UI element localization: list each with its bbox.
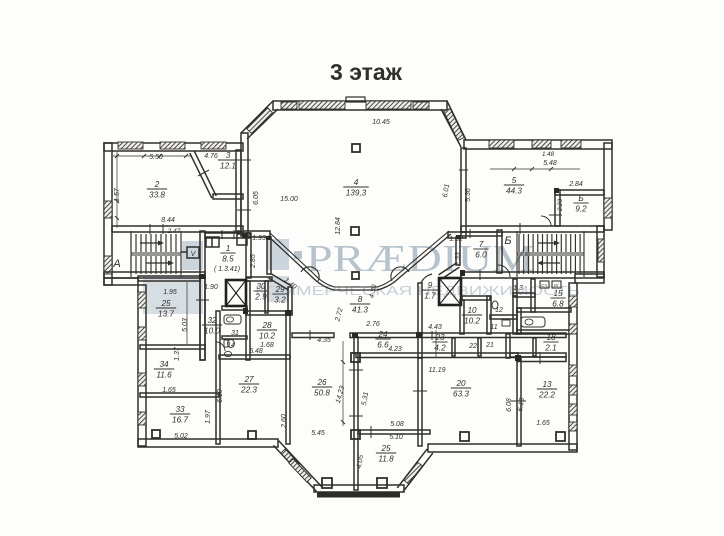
svg-text:26: 26 xyxy=(316,378,327,387)
svg-text:27: 27 xyxy=(243,375,254,384)
svg-text:34: 34 xyxy=(159,360,169,369)
svg-text:10.0: 10.0 xyxy=(204,327,220,336)
svg-text:7: 7 xyxy=(479,240,484,249)
svg-text:2.60: 2.60 xyxy=(281,414,288,429)
svg-text:2.1: 2.1 xyxy=(544,344,556,353)
svg-text:12: 12 xyxy=(495,307,503,314)
svg-text:15: 15 xyxy=(553,289,563,298)
svg-text:3.2: 3.2 xyxy=(274,296,286,305)
svg-text:13.7: 13.7 xyxy=(158,310,174,319)
svg-text:12.84: 12.84 xyxy=(335,217,342,235)
svg-text:8.44: 8.44 xyxy=(161,217,175,224)
svg-text:1.57: 1.57 xyxy=(114,187,121,202)
svg-text:2.33: 2.33 xyxy=(455,252,462,267)
svg-text:5.08: 5.08 xyxy=(390,421,404,428)
svg-text:А: А xyxy=(112,258,120,270)
svg-text:6.05: 6.05 xyxy=(253,191,260,205)
svg-text:2.23: 2.23 xyxy=(557,198,564,212)
svg-text:6.8: 6.8 xyxy=(552,300,564,309)
svg-text:22.2: 22.2 xyxy=(538,391,555,400)
svg-text:139,3: 139,3 xyxy=(346,189,367,198)
svg-text:24: 24 xyxy=(377,330,388,339)
svg-text:2.9: 2.9 xyxy=(254,293,267,302)
svg-text:50.8: 50.8 xyxy=(314,389,330,398)
svg-text:25: 25 xyxy=(160,299,171,308)
svg-text:10.45: 10.45 xyxy=(372,119,390,126)
svg-text:33: 33 xyxy=(175,405,185,414)
svg-text:2.84: 2.84 xyxy=(568,181,583,188)
svg-text:2.85: 2.85 xyxy=(250,254,257,269)
svg-text:Б: Б xyxy=(578,194,584,203)
svg-text:10.2: 10.2 xyxy=(464,317,480,326)
svg-text:1.65: 1.65 xyxy=(162,387,176,394)
svg-text:1.7: 1.7 xyxy=(424,292,436,301)
svg-text:8: 8 xyxy=(358,295,363,304)
svg-text:30: 30 xyxy=(256,282,266,291)
svg-text:21: 21 xyxy=(485,342,494,349)
svg-text:1.97: 1.97 xyxy=(205,409,212,424)
svg-text:16.7: 16.7 xyxy=(172,416,188,425)
svg-text:14: 14 xyxy=(227,342,235,349)
svg-text:11.6: 11.6 xyxy=(156,371,172,380)
svg-text:2.47: 2.47 xyxy=(167,228,181,235)
svg-text:33.8: 33.8 xyxy=(149,191,165,200)
svg-text:28: 28 xyxy=(261,321,272,330)
svg-text:41.3: 41.3 xyxy=(352,306,368,315)
svg-text:1.65: 1.65 xyxy=(536,420,550,427)
svg-text:8.5: 8.5 xyxy=(222,255,234,264)
svg-text:4.2: 4.2 xyxy=(434,344,446,353)
svg-text:11.8: 11.8 xyxy=(378,455,394,464)
svg-text:6.10: 6.10 xyxy=(217,389,224,403)
svg-text:11.19: 11.19 xyxy=(429,367,446,374)
svg-text:5.36: 5.36 xyxy=(465,188,472,202)
svg-text:4.76: 4.76 xyxy=(204,153,218,160)
svg-text:15.00: 15.00 xyxy=(280,196,298,203)
svg-text:12.1: 12.1 xyxy=(220,162,236,171)
svg-text:4.35: 4.35 xyxy=(317,337,331,344)
svg-text:20: 20 xyxy=(455,379,466,388)
svg-text:( 1.3.41): ( 1.3.41) xyxy=(214,266,240,273)
svg-text:1.32: 1.32 xyxy=(449,236,463,243)
svg-text:29: 29 xyxy=(274,285,285,294)
svg-text:1: 1 xyxy=(226,244,231,253)
svg-text:5.48: 5.48 xyxy=(249,348,263,355)
svg-text:6.08: 6.08 xyxy=(506,398,513,412)
svg-text:Б: Б xyxy=(504,235,511,247)
svg-text:10: 10 xyxy=(467,306,477,315)
svg-text:1.48: 1.48 xyxy=(542,151,555,158)
svg-text:4.43: 4.43 xyxy=(428,324,442,331)
svg-text:3: 3 xyxy=(226,151,231,160)
svg-text:31: 31 xyxy=(231,330,239,337)
svg-text:1.90: 1.90 xyxy=(204,284,218,291)
svg-text:44.3: 44.3 xyxy=(506,187,522,196)
svg-text:18: 18 xyxy=(546,333,556,342)
svg-text:1.93: 1.93 xyxy=(252,235,266,242)
svg-text:25: 25 xyxy=(380,444,391,453)
svg-text:63.3: 63.3 xyxy=(453,390,469,399)
svg-text:9.2: 9.2 xyxy=(575,205,587,214)
svg-text:5.10: 5.10 xyxy=(389,434,403,441)
svg-text:2.76: 2.76 xyxy=(365,321,380,328)
svg-text:23: 23 xyxy=(434,333,445,342)
svg-text:5.03: 5.03 xyxy=(182,318,189,332)
svg-text:9: 9 xyxy=(428,281,433,290)
svg-text:11: 11 xyxy=(490,324,497,331)
svg-text:22.3: 22.3 xyxy=(240,386,257,395)
svg-text:Сл: Сл xyxy=(541,283,547,288)
svg-text:5.02: 5.02 xyxy=(174,433,188,440)
svg-text:1.95: 1.95 xyxy=(163,289,177,296)
svg-text:1.3: 1.3 xyxy=(513,285,523,292)
svg-text:13: 13 xyxy=(542,380,552,389)
svg-text:1.37: 1.37 xyxy=(174,346,181,361)
svg-text:22: 22 xyxy=(468,343,477,350)
svg-text:5.50: 5.50 xyxy=(149,154,163,161)
svg-text:6.0: 6.0 xyxy=(475,251,487,260)
svg-text:5.48: 5.48 xyxy=(543,160,557,167)
svg-text:2: 2 xyxy=(154,180,160,189)
svg-text:5.45: 5.45 xyxy=(311,430,325,437)
svg-text:4: 4 xyxy=(354,178,359,187)
svg-text:3 этаж: 3 этаж xyxy=(330,59,403,85)
svg-text:4.23: 4.23 xyxy=(388,346,402,353)
svg-text:10.2: 10.2 xyxy=(259,332,275,341)
svg-text:32: 32 xyxy=(207,316,217,325)
svg-text:5: 5 xyxy=(512,176,517,185)
